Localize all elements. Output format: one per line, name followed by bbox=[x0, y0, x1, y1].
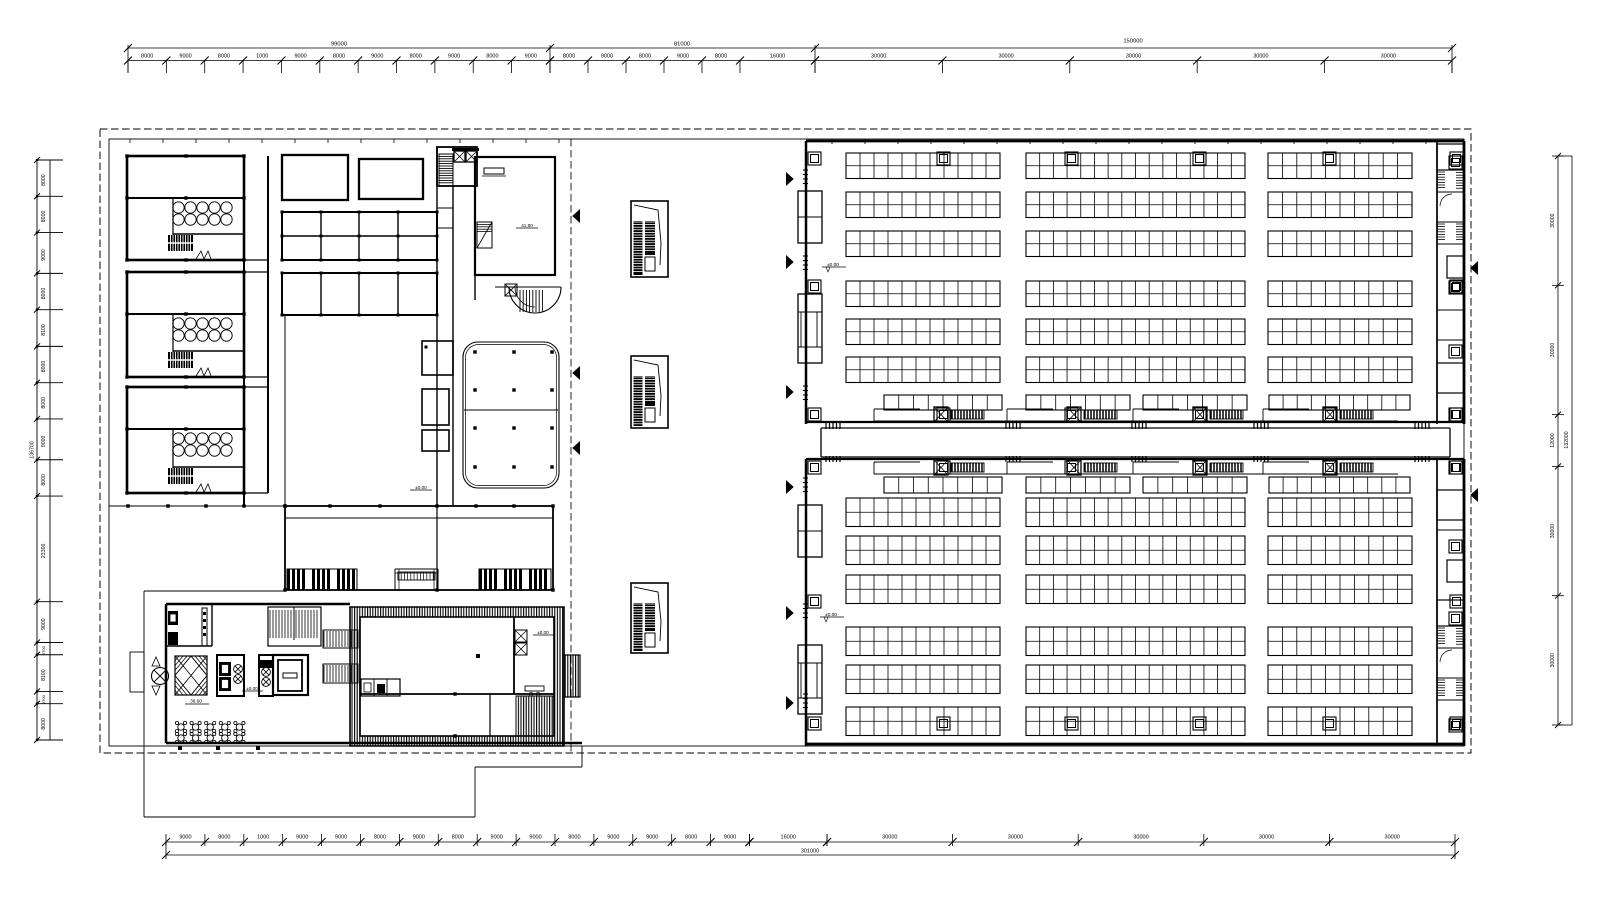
svg-text:99000: 99000 bbox=[331, 42, 347, 48]
svg-text:8000: 8000 bbox=[41, 288, 47, 300]
svg-text:301000: 301000 bbox=[801, 849, 819, 855]
svg-text:30000: 30000 bbox=[1253, 54, 1268, 60]
svg-text:±0.00: ±0.00 bbox=[415, 485, 427, 490]
svg-text:30000: 30000 bbox=[1008, 835, 1023, 841]
svg-text:30000: 30000 bbox=[1133, 835, 1148, 841]
svg-text:30000: 30000 bbox=[1550, 343, 1556, 358]
svg-text:9000: 9000 bbox=[448, 54, 460, 60]
svg-text:150000: 150000 bbox=[1123, 39, 1142, 45]
svg-text:9000: 9000 bbox=[677, 54, 689, 60]
svg-text:9000: 9000 bbox=[413, 835, 425, 841]
svg-text:9000: 9000 bbox=[371, 54, 383, 60]
svg-text:9000: 9000 bbox=[179, 54, 191, 60]
svg-text:30000: 30000 bbox=[1126, 54, 1141, 60]
svg-text:8000: 8000 bbox=[410, 54, 422, 60]
svg-text:9000: 9000 bbox=[41, 435, 47, 447]
svg-text:9000: 9000 bbox=[179, 835, 191, 841]
svg-text:9000: 9000 bbox=[601, 54, 613, 60]
svg-text:±0.00: ±0.00 bbox=[246, 686, 258, 691]
svg-text:16000: 16000 bbox=[770, 54, 785, 60]
svg-text:8000: 8000 bbox=[141, 54, 153, 60]
svg-text:8100: 8100 bbox=[41, 669, 47, 681]
svg-text:8000: 8000 bbox=[563, 54, 575, 60]
svg-text:23300: 23300 bbox=[41, 544, 47, 559]
svg-text:30000: 30000 bbox=[1259, 835, 1274, 841]
svg-text:9000: 9000 bbox=[294, 54, 306, 60]
svg-text:1000: 1000 bbox=[257, 835, 269, 841]
svg-text:9000: 9000 bbox=[335, 835, 347, 841]
svg-text:30000: 30000 bbox=[1385, 835, 1400, 841]
svg-text:9000: 9000 bbox=[529, 835, 541, 841]
svg-text:30000: 30000 bbox=[1381, 54, 1396, 60]
svg-text:8000: 8000 bbox=[452, 835, 464, 841]
svg-text:9000: 9000 bbox=[41, 249, 47, 261]
svg-text:8000: 8000 bbox=[486, 54, 498, 60]
svg-text:8000: 8000 bbox=[715, 54, 727, 60]
svg-text:9000: 9000 bbox=[525, 54, 537, 60]
svg-text:2700: 2700 bbox=[41, 645, 46, 655]
svg-text:30000: 30000 bbox=[882, 835, 897, 841]
svg-text:30000: 30000 bbox=[1550, 524, 1556, 539]
svg-text:8000: 8000 bbox=[41, 397, 47, 409]
svg-text:136700: 136700 bbox=[30, 441, 36, 458]
svg-text:8000: 8000 bbox=[333, 54, 345, 60]
svg-text:8000: 8000 bbox=[41, 211, 47, 223]
svg-text:9000: 9000 bbox=[724, 835, 736, 841]
svg-text:30000: 30000 bbox=[1550, 653, 1556, 668]
svg-text:8000: 8000 bbox=[685, 835, 697, 841]
svg-text:8000: 8000 bbox=[374, 835, 386, 841]
svg-text:36.60: 36.60 bbox=[190, 699, 202, 704]
svg-text:±0.00: ±0.00 bbox=[537, 630, 549, 635]
svg-text:2700: 2700 bbox=[41, 694, 46, 704]
svg-text:30000: 30000 bbox=[1550, 213, 1556, 228]
svg-text:16000: 16000 bbox=[781, 835, 796, 841]
svg-text:30000: 30000 bbox=[871, 54, 886, 60]
svg-text:8100: 8100 bbox=[41, 324, 47, 336]
svg-text:9000: 9000 bbox=[491, 835, 503, 841]
svg-text:30000: 30000 bbox=[998, 54, 1013, 60]
svg-text:9000: 9000 bbox=[41, 618, 47, 630]
svg-text:8000: 8000 bbox=[41, 174, 47, 186]
svg-text:8000: 8000 bbox=[41, 474, 47, 486]
svg-text:8000: 8000 bbox=[41, 718, 47, 730]
svg-text:12000: 12000 bbox=[1550, 433, 1556, 448]
svg-text:8000: 8000 bbox=[568, 835, 580, 841]
svg-text:8000: 8000 bbox=[41, 361, 47, 373]
svg-text:9000: 9000 bbox=[607, 835, 619, 841]
svg-text:8000: 8000 bbox=[218, 835, 230, 841]
svg-text:132000: 132000 bbox=[1564, 431, 1570, 448]
svg-text:1000: 1000 bbox=[256, 54, 268, 60]
svg-text:9000: 9000 bbox=[646, 835, 658, 841]
svg-text:8000: 8000 bbox=[218, 54, 230, 60]
svg-text:9000: 9000 bbox=[296, 835, 308, 841]
svg-text:8000: 8000 bbox=[639, 54, 651, 60]
svg-text:81000: 81000 bbox=[674, 42, 690, 48]
svg-text:41.80: 41.80 bbox=[521, 223, 533, 228]
